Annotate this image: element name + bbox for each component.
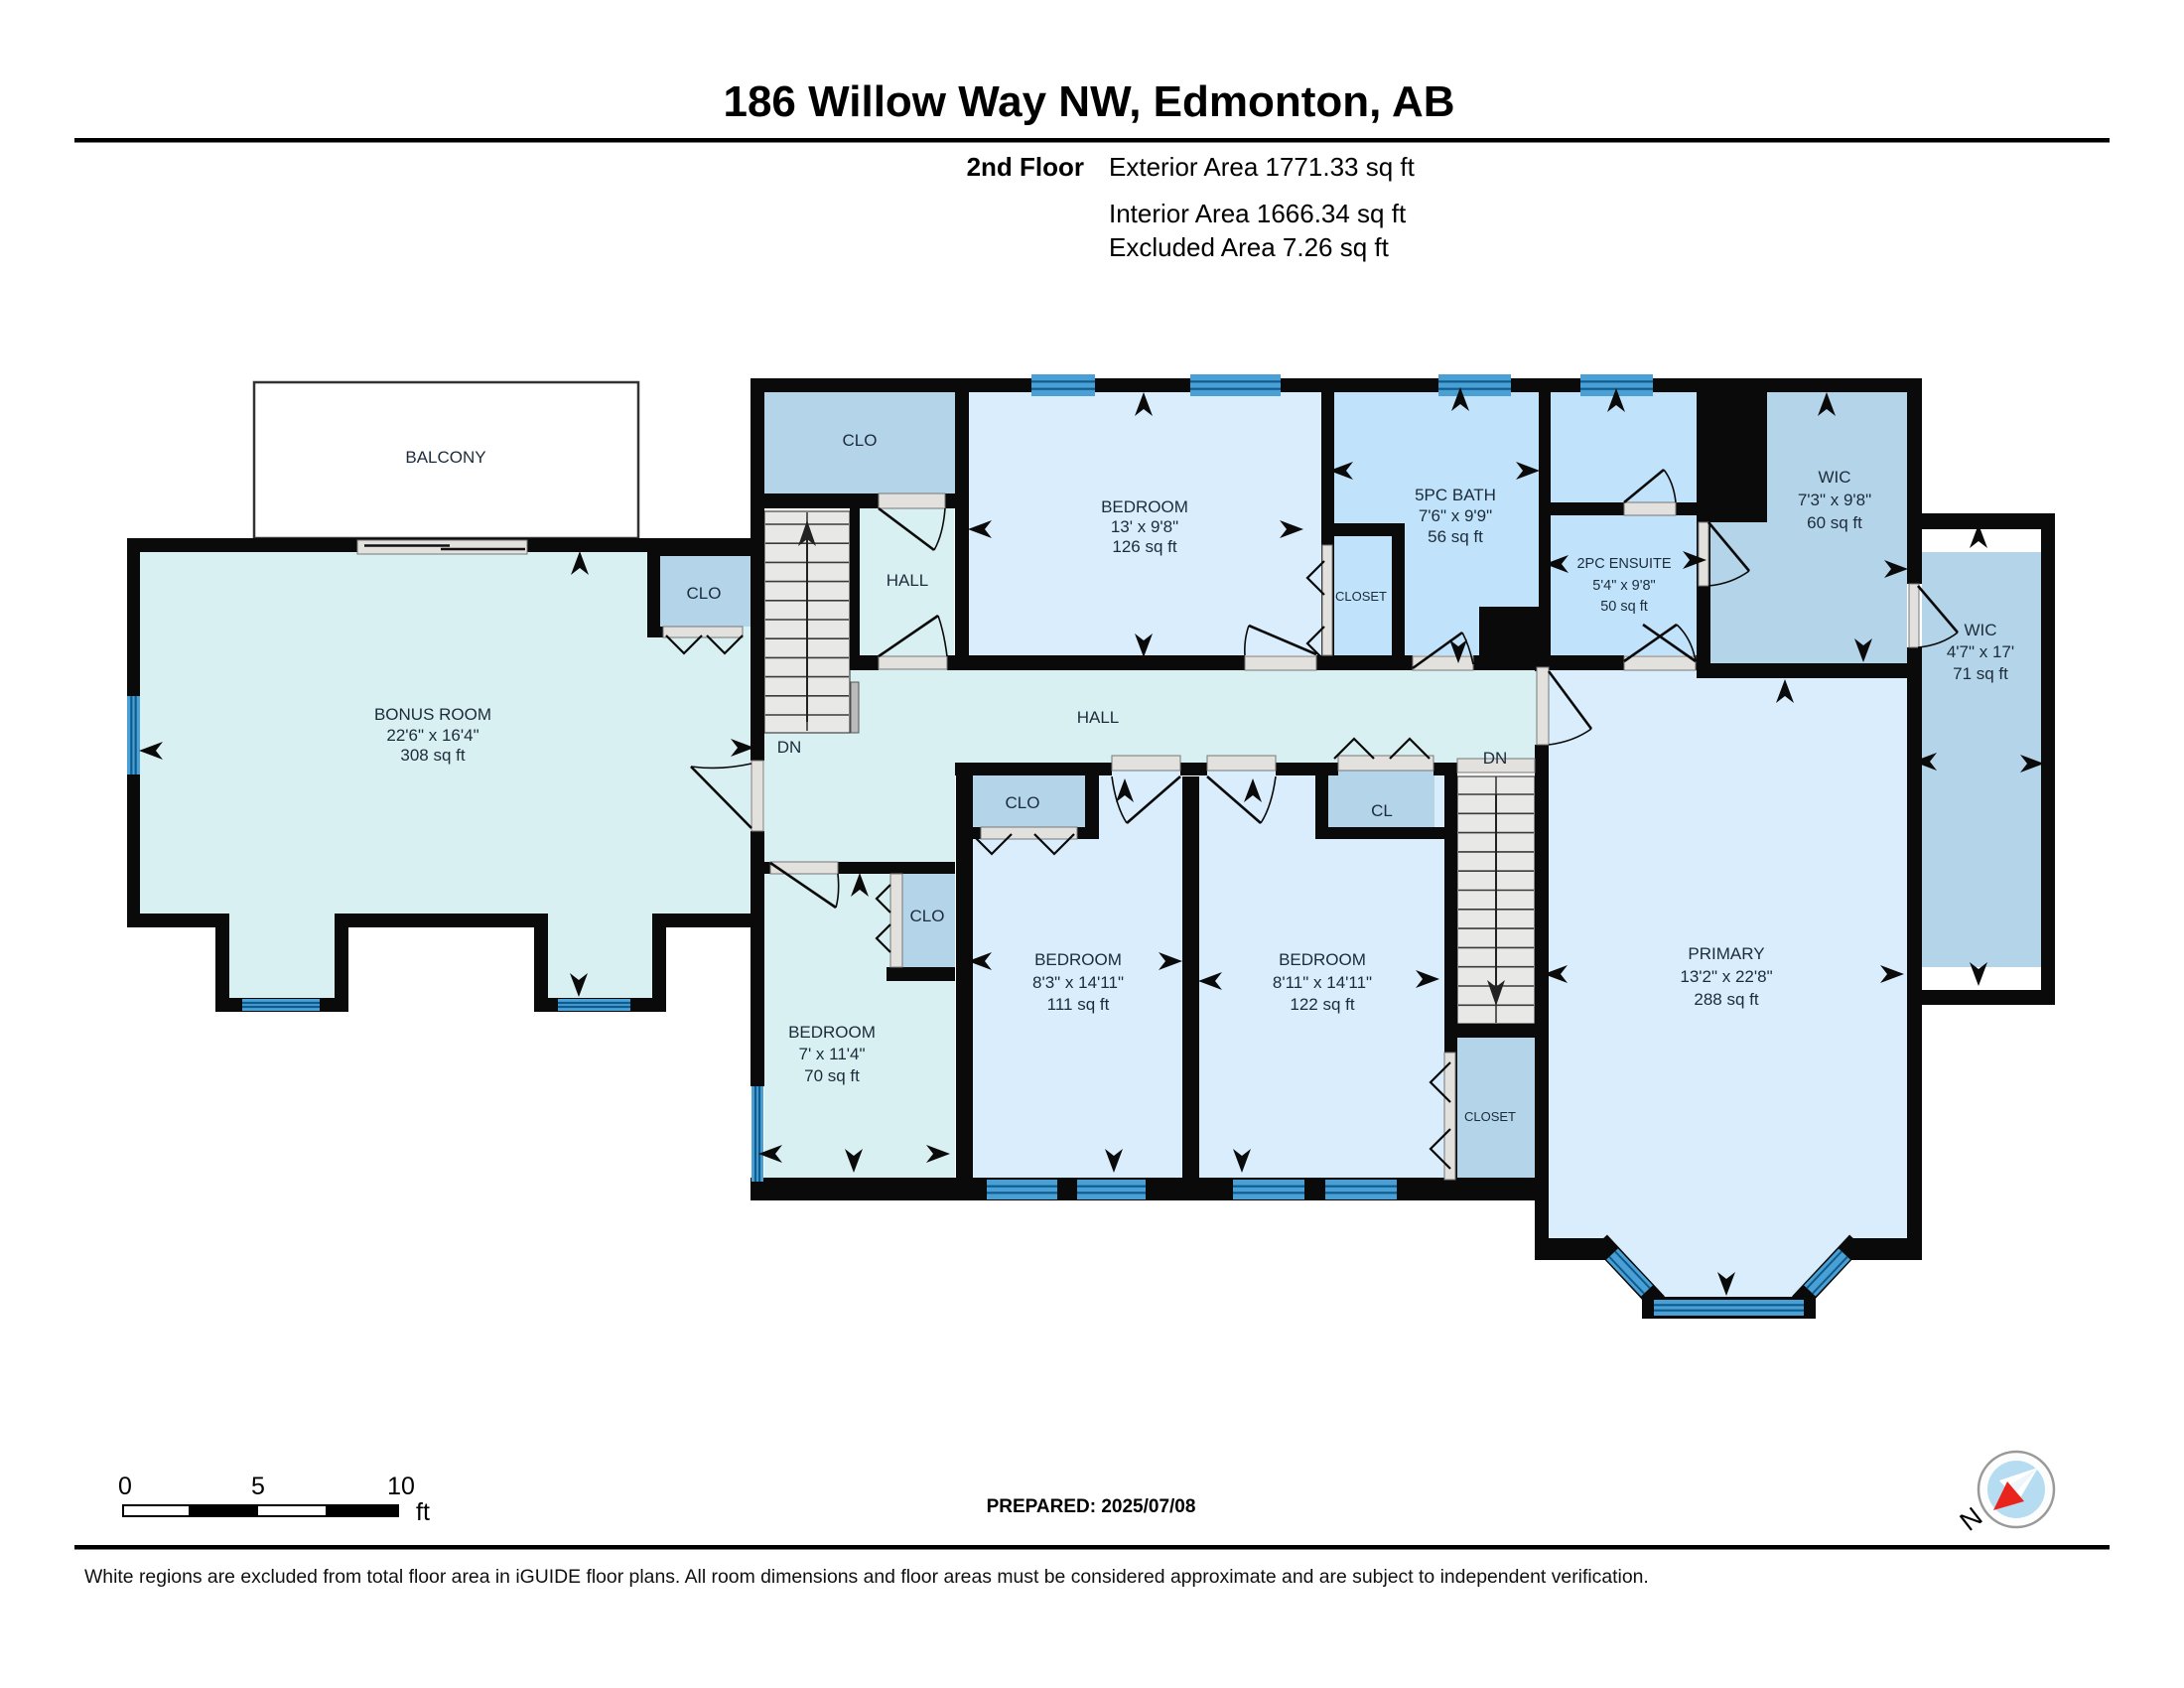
- svg-text:BALCONY: BALCONY: [405, 448, 485, 467]
- svg-text:5'4" x 9'8": 5'4" x 9'8": [1592, 578, 1655, 594]
- svg-text:8'3" x 14'11": 8'3" x 14'11": [1032, 973, 1124, 992]
- svg-text:2PC ENSUITE: 2PC ENSUITE: [1576, 556, 1671, 572]
- svg-text:CLO: CLO: [843, 431, 878, 450]
- svg-text:186 Willow Way NW, Edmonton, A: 186 Willow Way NW, Edmonton, AB: [723, 77, 1454, 126]
- svg-text:111 sq ft: 111 sq ft: [1047, 995, 1110, 1014]
- svg-text:CLO: CLO: [910, 907, 945, 925]
- svg-text:Interior Area 1666.34 sq ft: Interior Area 1666.34 sq ft: [1109, 199, 1407, 228]
- svg-text:DN: DN: [777, 738, 802, 757]
- svg-text:2nd Floor: 2nd Floor: [967, 152, 1084, 182]
- svg-text:126 sq ft: 126 sq ft: [1112, 537, 1176, 556]
- svg-text:7'6" x 9'9": 7'6" x 9'9": [1419, 506, 1492, 525]
- svg-text:BONUS ROOM: BONUS ROOM: [374, 705, 491, 724]
- svg-text:10: 10: [387, 1473, 415, 1500]
- svg-text:7' x 11'4": 7' x 11'4": [798, 1045, 865, 1063]
- svg-text:122 sq ft: 122 sq ft: [1290, 995, 1354, 1014]
- svg-text:WIC: WIC: [1818, 468, 1850, 487]
- svg-text:0: 0: [118, 1473, 132, 1500]
- svg-text:BEDROOM: BEDROOM: [788, 1023, 876, 1042]
- svg-text:5PC BATH: 5PC BATH: [1415, 486, 1496, 504]
- svg-text:PREPARED: 2025/07/08: PREPARED: 2025/07/08: [987, 1496, 1196, 1517]
- svg-text:CL: CL: [1371, 801, 1393, 820]
- svg-text:PRIMARY: PRIMARY: [1688, 944, 1764, 963]
- svg-text:288 sq ft: 288 sq ft: [1694, 990, 1758, 1009]
- svg-text:BEDROOM: BEDROOM: [1101, 497, 1188, 516]
- svg-text:White regions are excluded fro: White regions are excluded from total fl…: [84, 1566, 1649, 1588]
- svg-text:60 sq ft: 60 sq ft: [1807, 513, 1862, 532]
- svg-text:BEDROOM: BEDROOM: [1034, 950, 1122, 969]
- svg-text:HALL: HALL: [887, 571, 929, 590]
- svg-text:CLOSET: CLOSET: [1335, 589, 1387, 604]
- svg-text:50 sq ft: 50 sq ft: [1600, 599, 1648, 615]
- svg-text:Exterior Area 1771.33 sq ft: Exterior Area 1771.33 sq ft: [1109, 152, 1416, 182]
- svg-text:71 sq ft: 71 sq ft: [1953, 664, 2008, 683]
- svg-text:CLO: CLO: [687, 584, 722, 603]
- svg-text:56 sq ft: 56 sq ft: [1428, 527, 1483, 546]
- svg-text:308 sq ft: 308 sq ft: [400, 746, 465, 765]
- svg-text:8'11" x 14'11": 8'11" x 14'11": [1273, 973, 1372, 992]
- svg-text:70 sq ft: 70 sq ft: [804, 1066, 860, 1085]
- svg-text:5: 5: [251, 1473, 265, 1500]
- svg-text:ft: ft: [416, 1498, 430, 1526]
- svg-text:Excluded Area 7.26 sq ft: Excluded Area 7.26 sq ft: [1109, 232, 1390, 262]
- svg-text:13' x 9'8": 13' x 9'8": [1111, 517, 1178, 536]
- svg-text:CLOSET: CLOSET: [1464, 1109, 1516, 1124]
- svg-text:7'3" x 9'8": 7'3" x 9'8": [1798, 491, 1871, 509]
- svg-text:4'7" x 17': 4'7" x 17': [1947, 642, 2014, 661]
- svg-text:CLO: CLO: [1006, 793, 1040, 812]
- svg-text:22'6" x 16'4": 22'6" x 16'4": [386, 726, 478, 745]
- svg-text:BEDROOM: BEDROOM: [1279, 950, 1366, 969]
- svg-text:HALL: HALL: [1077, 708, 1120, 727]
- svg-text:WIC: WIC: [1964, 621, 1996, 639]
- svg-text:DN: DN: [1483, 749, 1508, 768]
- svg-text:13'2" x 22'8": 13'2" x 22'8": [1680, 967, 1772, 986]
